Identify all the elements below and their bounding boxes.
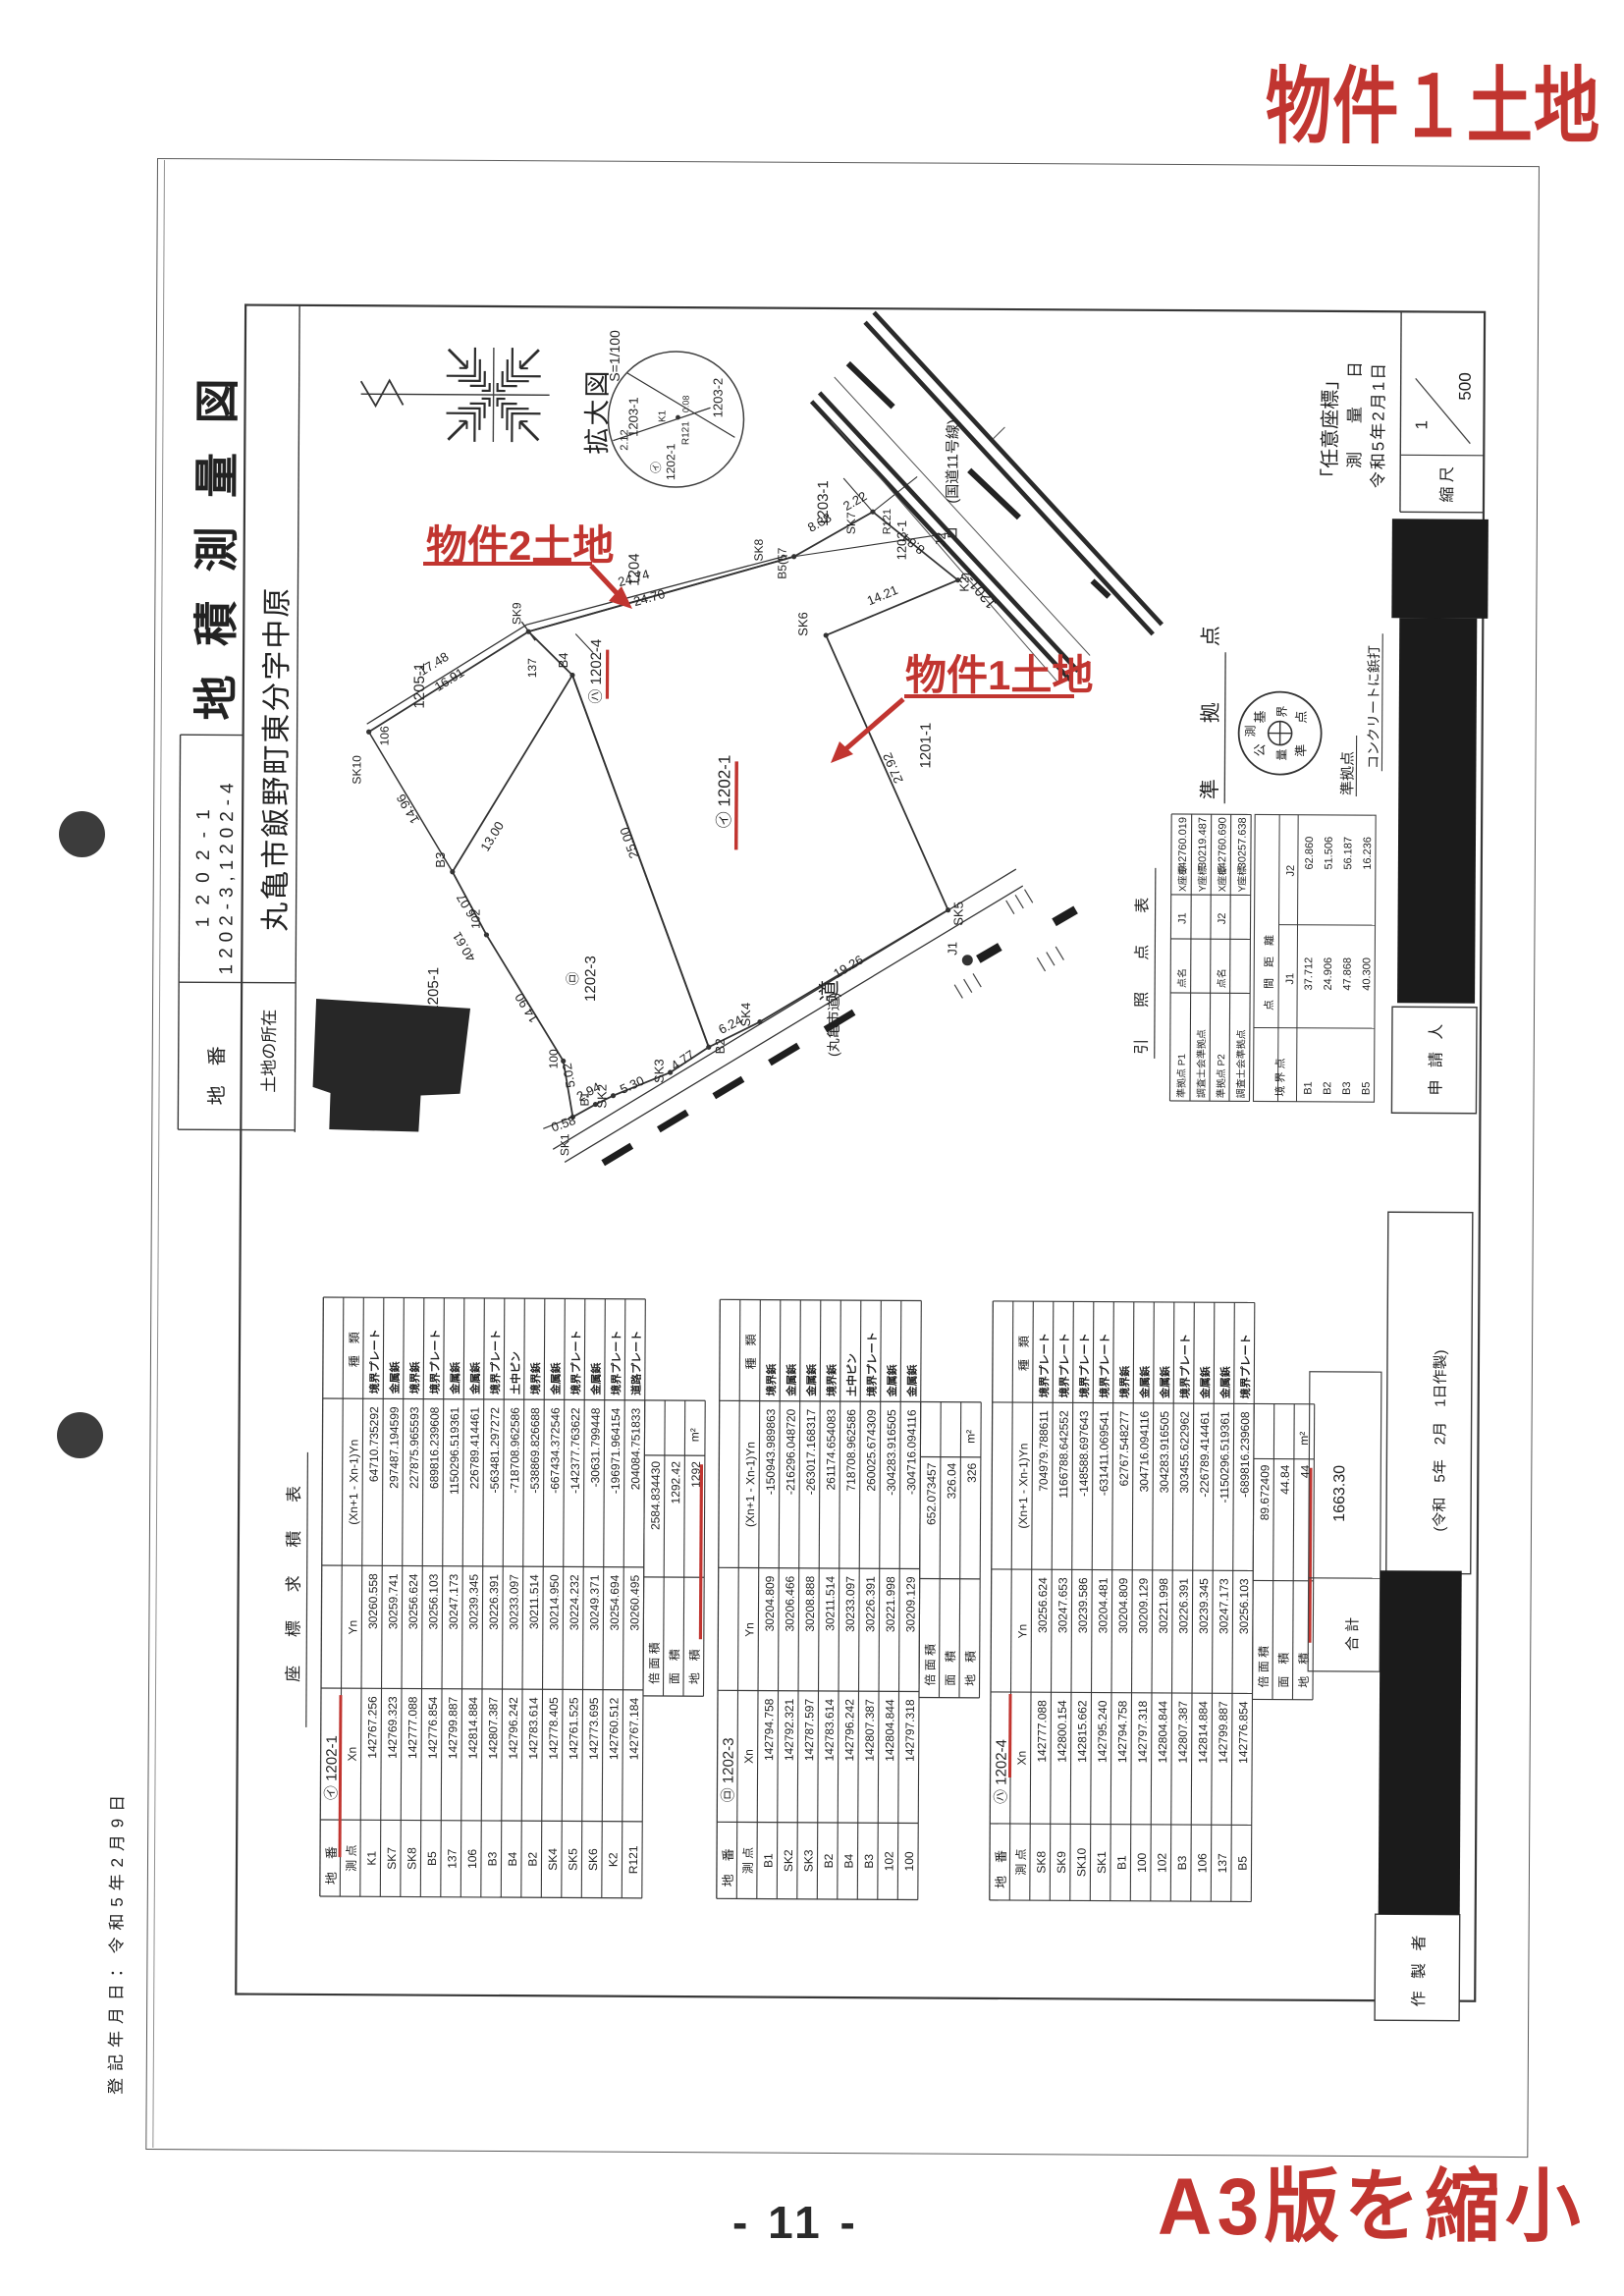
- svg-text:物件1土地: 物件1土地: [905, 652, 1093, 698]
- svg-text:物件2土地: 物件2土地: [426, 522, 614, 569]
